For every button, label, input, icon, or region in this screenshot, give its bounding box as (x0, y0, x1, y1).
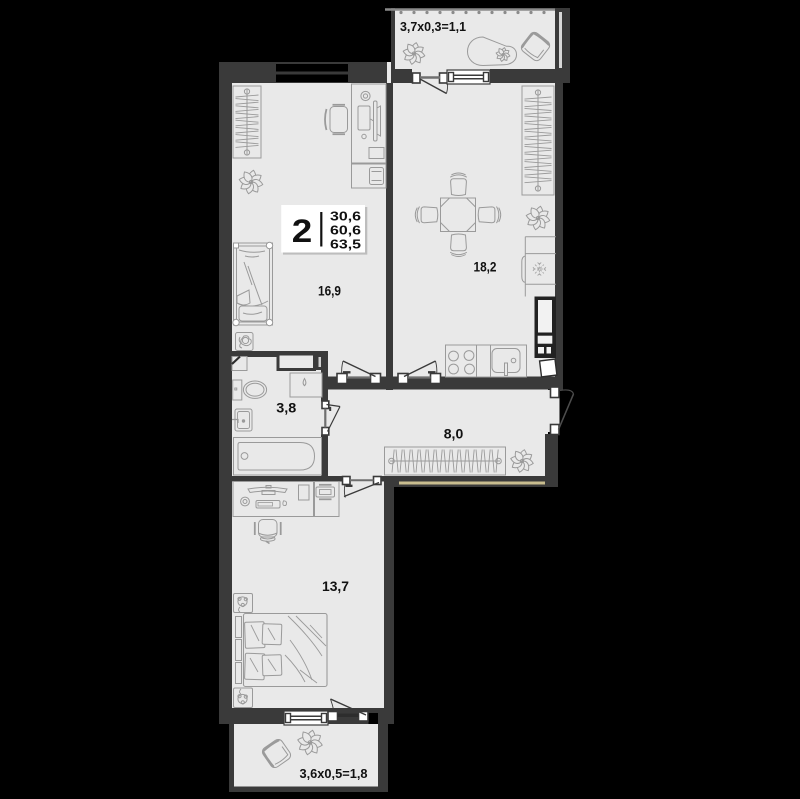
svg-text:2: 2 (292, 213, 313, 249)
svg-text:16,9: 16,9 (318, 284, 341, 299)
svg-text:3,6х0,5=1,8: 3,6х0,5=1,8 (300, 767, 368, 781)
svg-text:3,8: 3,8 (276, 400, 297, 415)
svg-text:13,7: 13,7 (322, 579, 349, 594)
svg-text:30,6: 30,6 (330, 209, 361, 224)
svg-text:8,0: 8,0 (444, 427, 464, 442)
svg-text:60,6: 60,6 (330, 223, 361, 238)
svg-text:18,2: 18,2 (474, 260, 497, 275)
svg-text:63,5: 63,5 (330, 237, 361, 252)
svg-text:3,7х0,3=1,1: 3,7х0,3=1,1 (400, 20, 466, 34)
